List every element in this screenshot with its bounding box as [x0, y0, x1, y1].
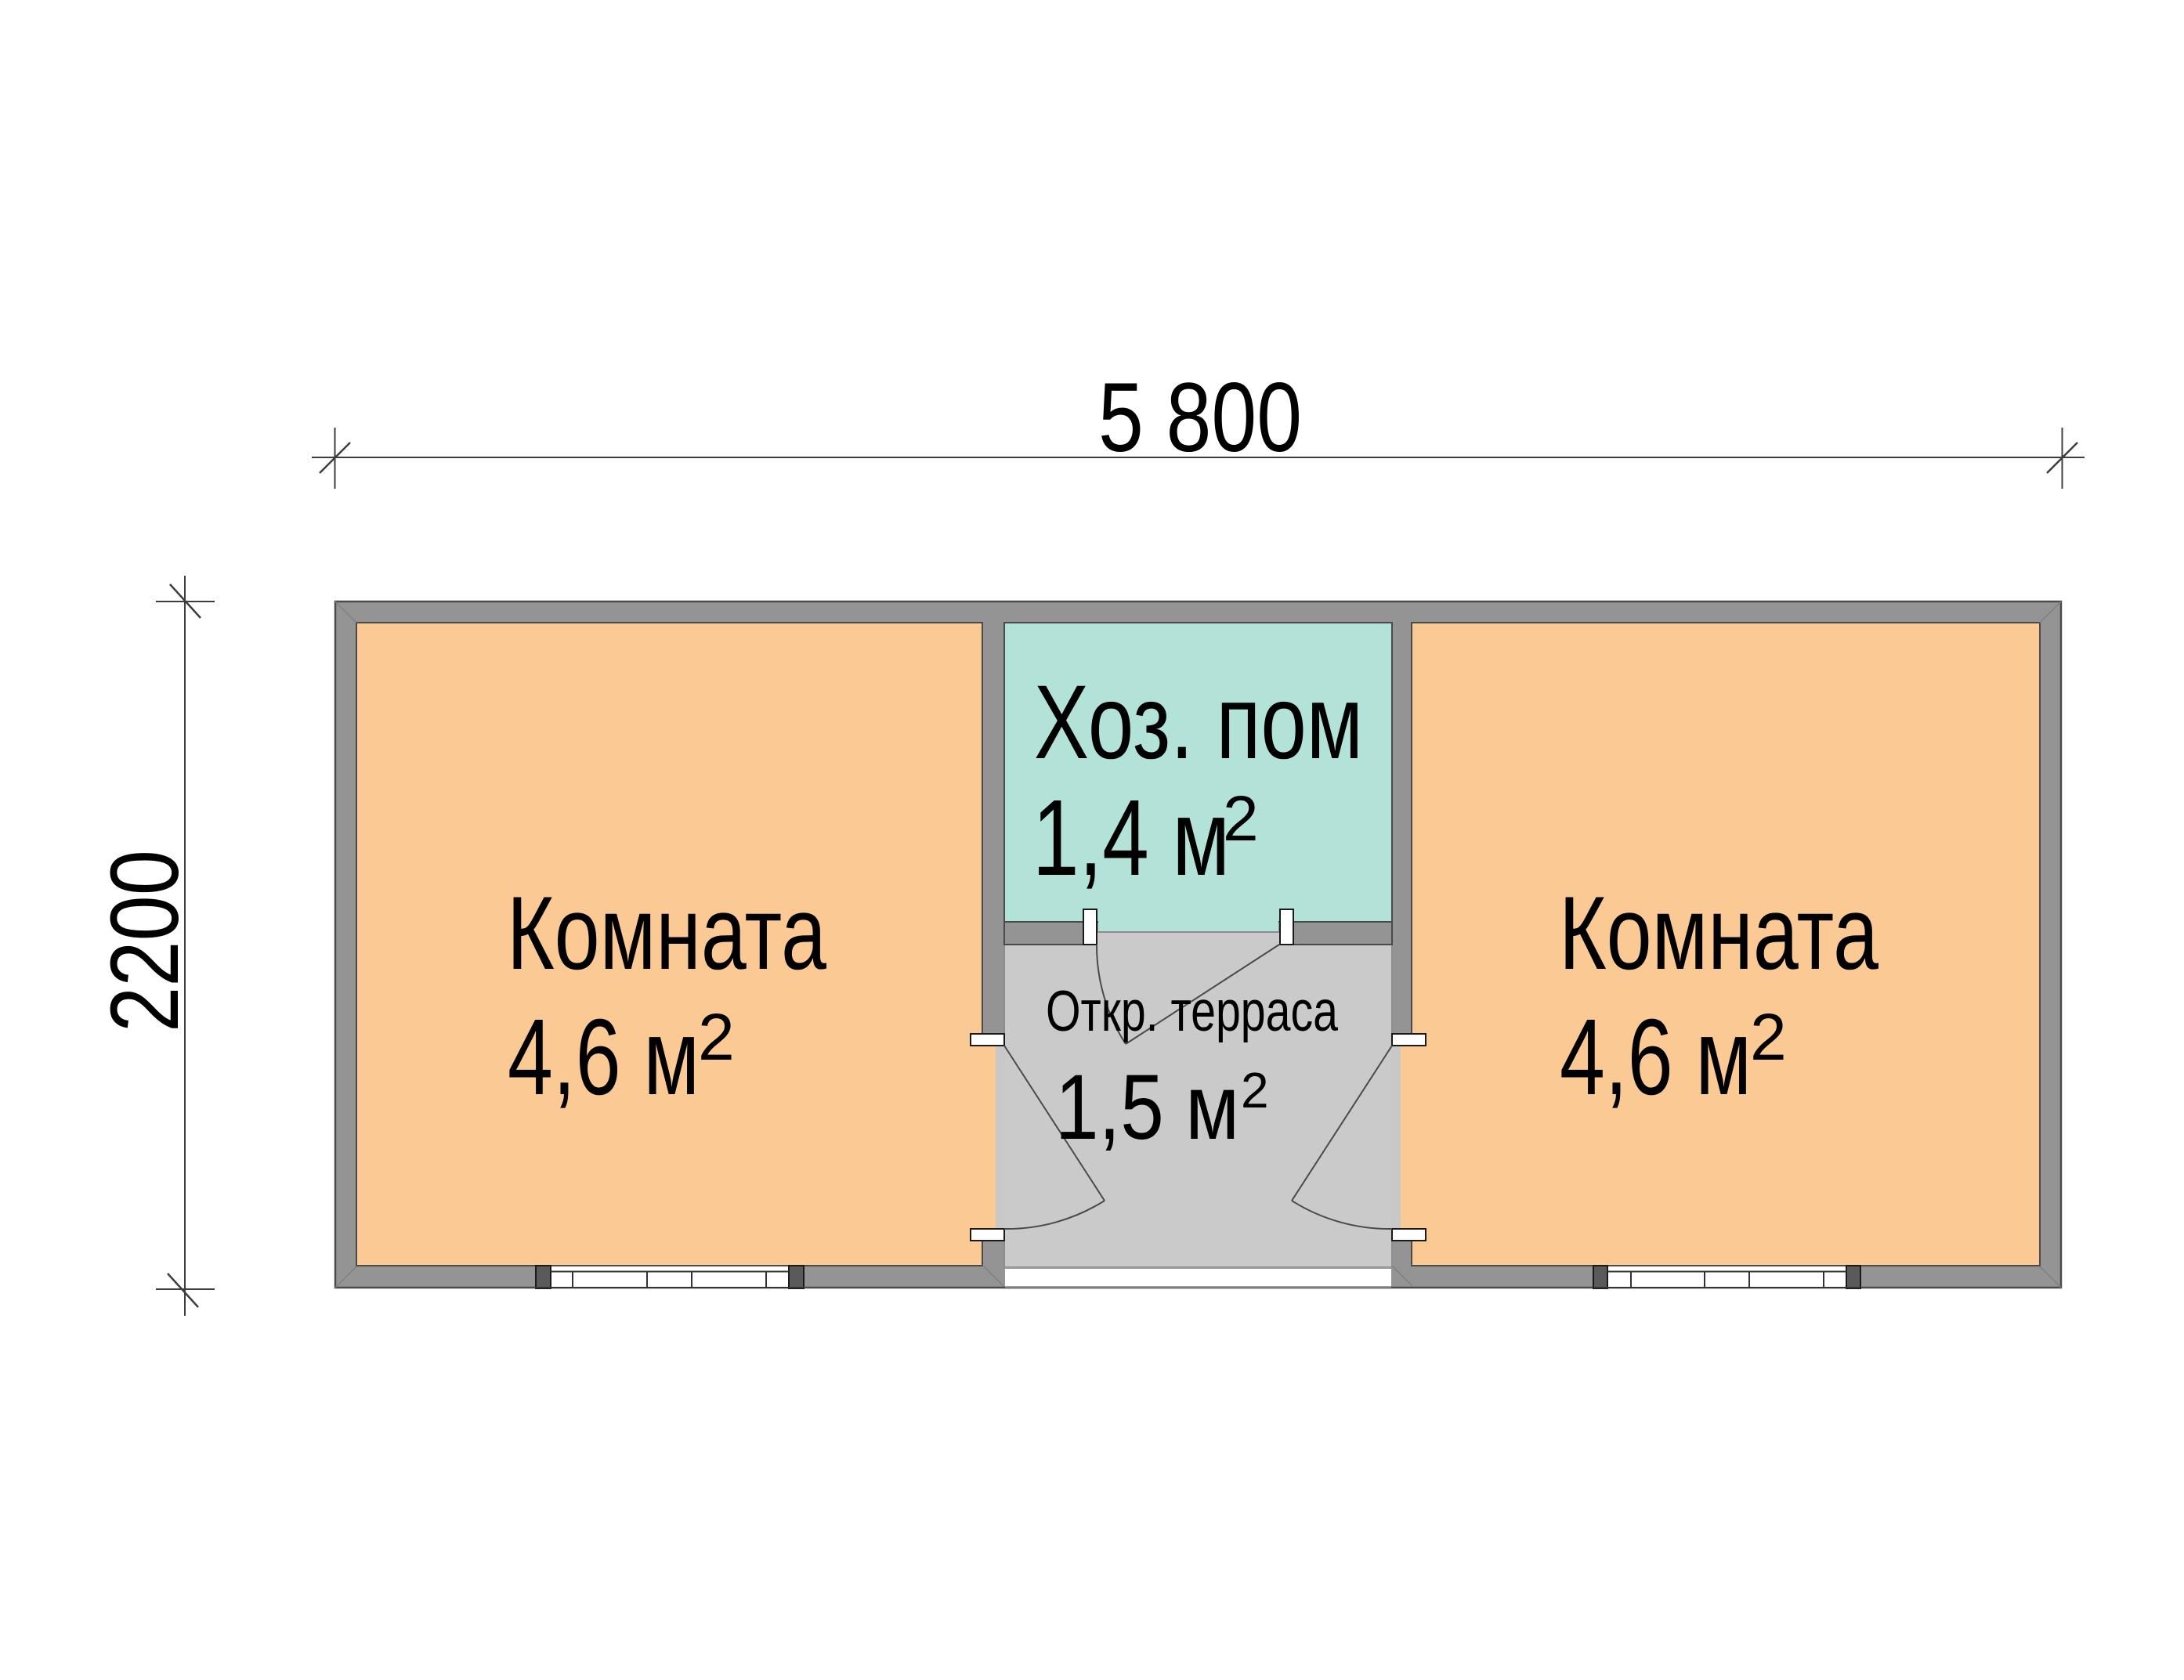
svg-text:2: 2: [698, 1000, 735, 1074]
svg-text:4,6 м: 4,6 м: [1560, 997, 1752, 1118]
svg-text:2: 2: [1241, 1062, 1269, 1118]
svg-text:Комната: Комната: [507, 876, 826, 992]
svg-text:1,5 м: 1,5 м: [1055, 1056, 1239, 1159]
svg-text:4,6 м: 4,6 м: [508, 997, 700, 1118]
svg-text:Хоз. пом: Хоз. пом: [1034, 664, 1363, 781]
svg-text:2: 2: [1750, 1000, 1787, 1074]
svg-text:Откр. терраса: Откр. терраса: [1046, 980, 1338, 1043]
svg-text:5 800: 5 800: [1098, 363, 1302, 472]
svg-text:2200: 2200: [92, 850, 199, 1032]
svg-text:1,4 м: 1,4 м: [1032, 778, 1230, 898]
svg-text:2: 2: [1223, 783, 1259, 854]
svg-text:Комната: Комната: [1559, 876, 1878, 992]
